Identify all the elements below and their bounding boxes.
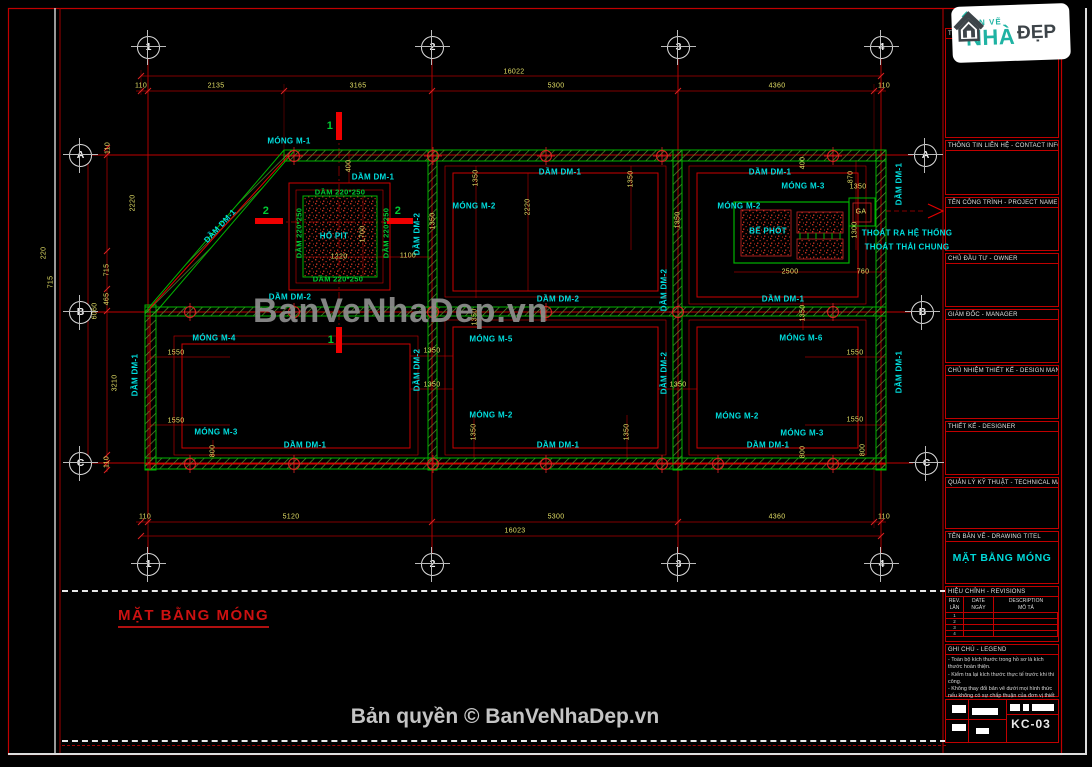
grid-bubbles-layer: 12341234ABCABC <box>0 0 1092 767</box>
grid-bubble: 1 <box>137 553 160 576</box>
grid-bubble: 4 <box>870 36 893 59</box>
grid-bubble: 4 <box>870 553 893 576</box>
grid-bubble: A <box>69 144 92 167</box>
grid-bubble: A <box>914 144 937 167</box>
grid-bubble: C <box>915 452 938 475</box>
grid-bubble: B <box>911 301 934 324</box>
grid-bubble: 3 <box>667 553 690 576</box>
grid-bubble: C <box>69 452 92 475</box>
banvenhadep-logo: BẢN VẼ NHÀ ĐẸP <box>951 3 1071 63</box>
house-icon <box>951 6 986 47</box>
grid-bubble: B <box>69 301 92 324</box>
logo-line-dep: ĐẸP <box>1017 22 1057 42</box>
grid-bubble: 2 <box>421 36 444 59</box>
grid-bubble: 3 <box>667 36 690 59</box>
drawing-sheet: MÓNG M-1DẦM DM-1DẦM DM-1DẦM DM-1MÓNG M-3… <box>0 0 1092 767</box>
grid-bubble: 1 <box>137 36 160 59</box>
grid-bubble: 2 <box>421 553 444 576</box>
